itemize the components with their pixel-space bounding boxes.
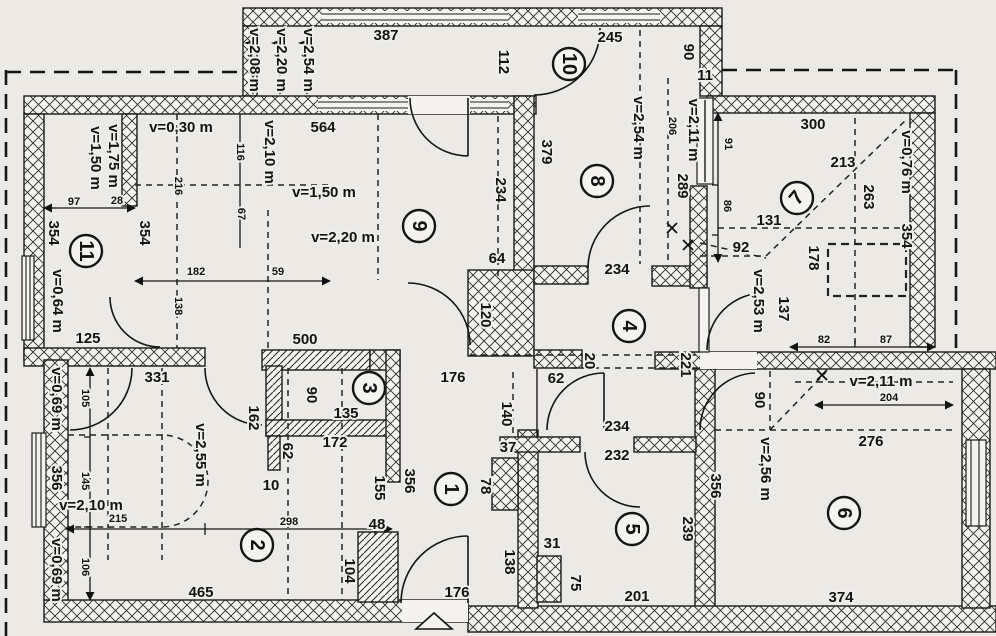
svg-text:10: 10 [558,53,580,75]
dim-label: 234 [492,177,509,203]
dim-label: 300 [800,116,825,133]
height-label: v=0,69 m [48,538,65,602]
dim-label: 354 [45,220,62,246]
dim-label: 176 [444,584,469,601]
dim-label: 90 [751,392,768,409]
dim-label: 232 [604,447,629,464]
dim-label: 105 [79,389,91,407]
dim-label: 10 [263,477,280,494]
dim-label: 234 [604,261,630,278]
dim-label: 162 [245,405,262,430]
height-label: v=1,75 m [105,124,122,188]
svg-text:3: 3 [358,382,380,393]
height-label: v=0,30 m [149,119,213,136]
dim-label: 564 [310,119,336,136]
dim-label: 125 [75,330,100,347]
room-number-11: 11 [70,235,102,267]
dim-label: 155 [371,475,388,500]
height-label: v=2,56 m [757,437,774,501]
dim-label: 92 [733,239,750,256]
dim-label: 116 [234,143,246,161]
dim-label: 90 [680,44,697,61]
height-label: v=2,08 m [246,28,263,92]
dim-label: 86 [721,200,733,212]
height-label: v=2,10 m [261,120,278,184]
dim-label: 221 [677,352,694,377]
dim-label: 298 [280,516,298,528]
dim-label: 90 [303,387,320,404]
dim-label: 78 [477,478,494,495]
dim-label: 131 [756,212,781,229]
dim-label: 140 [498,401,515,426]
svg-text:5: 5 [621,523,643,534]
room-number-7: 7 [781,182,813,214]
dim-label: 48 [369,516,386,533]
dim-label: 201 [624,588,649,605]
height-label: v=2,11 m [685,99,702,162]
dim-label: 87 [880,334,892,346]
dim-label: 234 [604,418,630,435]
room-number-2: 2 [241,529,273,561]
dim-label: 37 [500,439,517,456]
dim-label: 145 [79,472,91,490]
dim-label: 64 [489,250,506,267]
dim-label: 20 [581,353,598,370]
dim-label: 176 [440,369,465,386]
dim-label: 67 [235,208,247,220]
svg-text:6: 6 [833,507,855,518]
dim-label: 245 [597,29,622,46]
dim-label: 120 [477,302,494,327]
dim-label: 172 [322,434,347,451]
dim-label: 82 [818,334,830,346]
height-label: v=0,69 m [48,367,65,431]
dim-label: 59 [272,266,284,278]
dim-label: 213 [830,154,855,171]
dim-label: 62 [548,370,565,387]
dim-label: 356 [707,473,724,498]
dim-label: 204 [880,392,899,404]
dim-label: 215 [109,513,127,525]
height-label: v=2,20 m [273,28,290,92]
room-number-4: 4 [613,310,645,342]
dim-label: 239 [679,516,696,541]
dim-label: 356 [48,465,65,490]
dim-label: 331 [144,369,169,386]
dim-label: 354 [898,223,915,249]
height-label: v=2,10 m [59,497,123,514]
dim-label: 387 [373,27,398,44]
dim-label: 31 [544,535,561,552]
svg-text:9: 9 [408,220,430,231]
room-number-10: 10 [553,48,585,80]
dim-label: 11 [697,67,713,84]
svg-text:4: 4 [618,320,640,332]
dim-label: 182 [187,266,205,278]
dim-label: 137 [775,296,792,321]
dim-label: 135 [333,405,358,422]
dim-label: 28 [111,195,123,207]
dim-label: 465 [188,584,213,601]
room-number-6: 6 [828,497,860,529]
dim-label: 112 [495,50,512,74]
height-label: v=1,50 m [87,126,104,190]
dim-label: 138 [501,549,518,574]
dim-label: 206 [666,117,678,135]
dim-label: 276 [858,433,883,450]
dim-label: 374 [828,589,854,606]
height-label: v=2,54 m [630,96,647,160]
height-label: v=0,64 m [49,269,66,333]
dim-label: 138 [172,297,184,315]
height-label: v=0,76 m [898,130,915,194]
dim-label: 356 [401,468,418,493]
svg-text:11: 11 [75,240,97,261]
height-label: v=2,55 m [192,423,209,487]
floor-plan-svg: v=2,08 mv=2,20 mv=2,54 m3871122459011206… [0,0,996,636]
dim-label: 379 [538,139,555,164]
height-label: v=2,11 m [850,373,913,390]
scanned-floor-plan-page: v=2,08 mv=2,20 mv=2,54 m3871122459011206… [0,0,996,636]
dim-label: 500 [292,331,317,348]
svg-text:1: 1 [440,483,462,494]
height-label: v=2,20 m [311,229,375,246]
dim-label: 62 [279,443,296,460]
dim-label: 104 [341,558,358,584]
room-number-1: 1 [435,473,467,505]
height-label: v=2,53 m [750,269,767,333]
height-label: v=2,54 m [300,28,317,92]
dim-label: 75 [567,575,584,592]
dim-label: 178 [805,245,822,270]
dim-label: 106 [79,558,91,576]
dim-label: 263 [860,184,877,209]
room-number-5: 5 [616,513,648,545]
dim-label: 289 [674,173,691,198]
dim-label: 216 [172,177,184,195]
room-number-3: 3 [353,372,385,404]
svg-text:2: 2 [246,539,268,550]
dim-label: 97 [68,196,80,208]
height-label: v=1,50 m [292,184,356,201]
dim-label: 91 [722,138,734,150]
room-number-9: 9 [403,210,435,242]
room-number-8: 8 [581,165,613,197]
svg-text:8: 8 [586,175,608,186]
dim-label: 354 [136,220,153,246]
